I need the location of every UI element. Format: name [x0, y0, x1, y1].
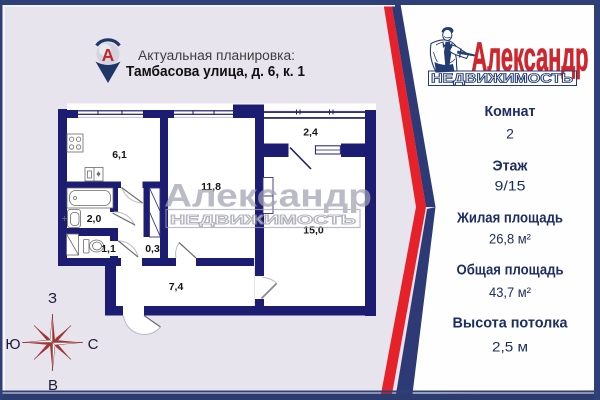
svg-text:А: А	[102, 45, 115, 65]
svg-text:0,3: 0,3	[145, 243, 160, 255]
svg-text:2,0: 2,0	[87, 213, 102, 225]
svg-text:2,4: 2,4	[303, 127, 318, 139]
svg-text:НЕДВИЖИМОСТЬ: НЕДВИЖИМОСТЬ	[170, 212, 356, 227]
svg-text:НЕДВИЖИМОСТЬ: НЕДВИЖИМОСТЬ	[431, 72, 573, 86]
svg-text:9/15: 9/15	[495, 178, 526, 194]
svg-text:6,1: 6,1	[112, 149, 127, 161]
svg-text:С: С	[88, 336, 99, 353]
svg-text:Этаж: Этаж	[493, 158, 528, 175]
svg-text:Ю: Ю	[5, 336, 20, 353]
svg-text:Тамбасова улица, д. 6, к. 1: Тамбасова улица, д. 6, к. 1	[126, 63, 305, 80]
svg-text:Общая площадь: Общая площадь	[457, 262, 564, 279]
svg-text:43,7 м²: 43,7 м²	[489, 284, 531, 300]
svg-text:Александр: Александр	[164, 178, 372, 214]
svg-text:Жилая площадь: Жилая площадь	[456, 210, 563, 227]
svg-text:Высота потолка: Высота потолка	[453, 315, 569, 332]
svg-text:2,5 м: 2,5 м	[492, 339, 528, 355]
svg-text:Комнат: Комнат	[485, 103, 536, 120]
svg-text:Актуальная планировка:: Актуальная планировка:	[138, 48, 295, 63]
svg-text:26,8 м²: 26,8 м²	[489, 231, 531, 247]
svg-text:2: 2	[506, 126, 514, 142]
svg-text:7,4: 7,4	[169, 281, 184, 293]
svg-text:З: З	[48, 290, 57, 307]
svg-text:1,1: 1,1	[101, 243, 116, 255]
